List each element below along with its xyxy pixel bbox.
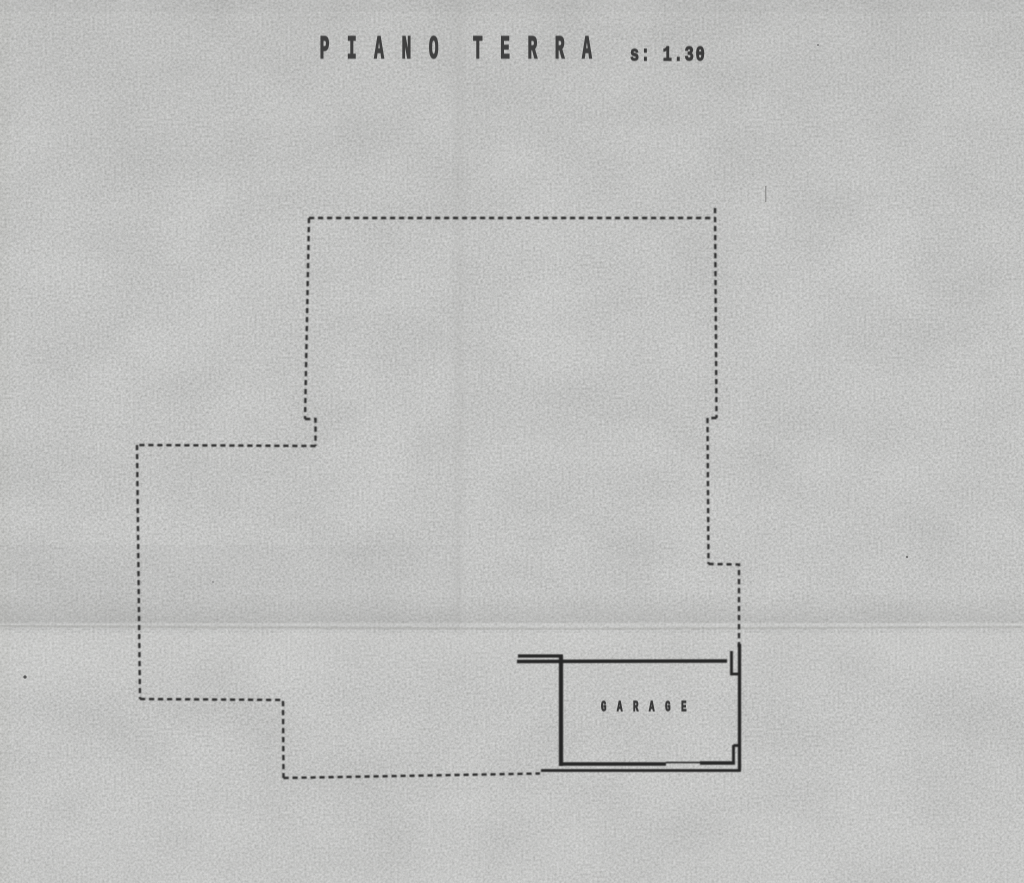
svg-text:TERRA: TERRA	[473, 31, 609, 68]
svg-text:s: 1.30: s: 1.30	[630, 44, 707, 67]
svg-text:GARAGE: GARAGE	[601, 699, 697, 716]
svg-text:PIANO: PIANO	[320, 31, 456, 68]
